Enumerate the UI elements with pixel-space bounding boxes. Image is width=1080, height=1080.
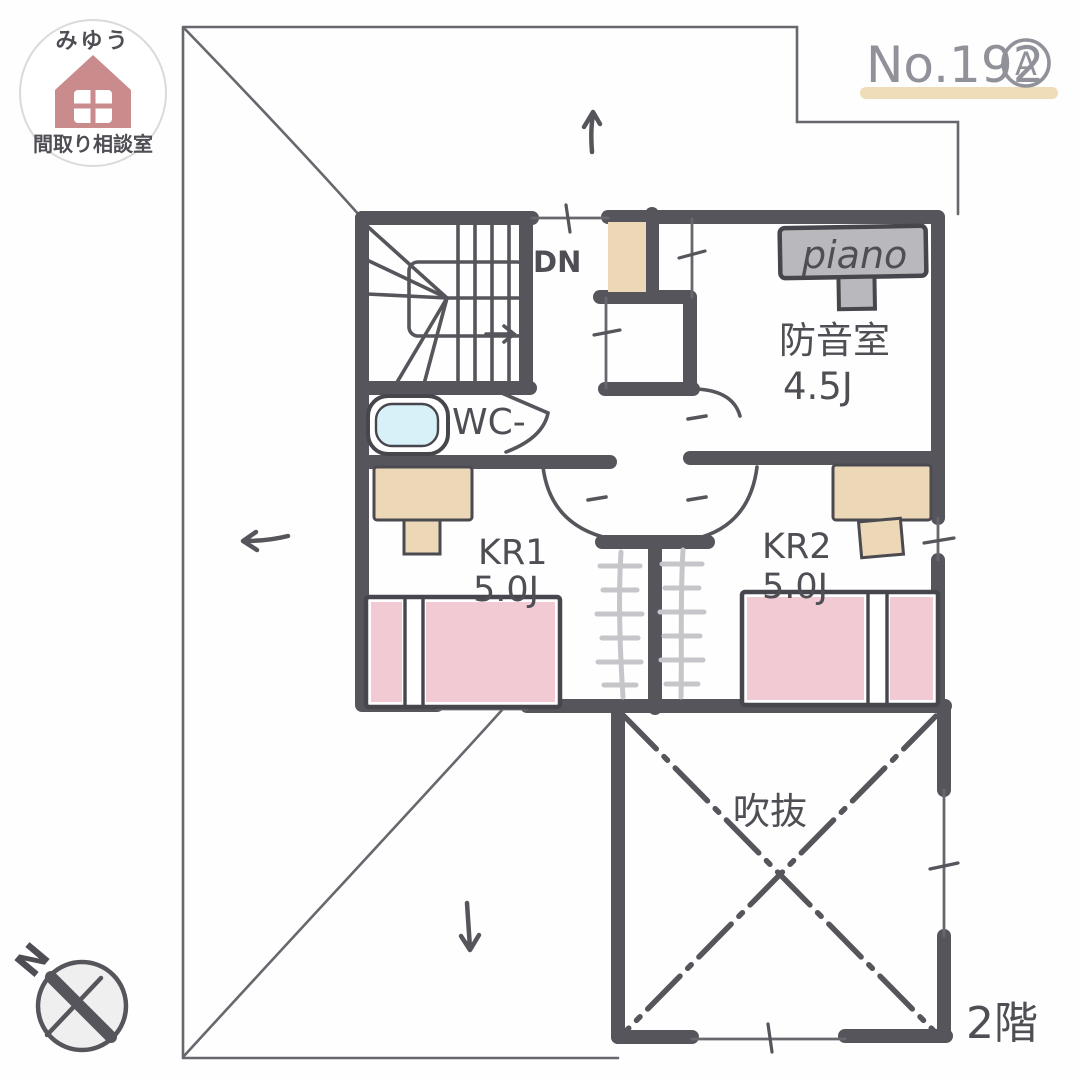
- chair-kr1: [404, 520, 440, 554]
- kr2-size-label: 5.0J: [762, 567, 828, 607]
- arrow-down-icon: [461, 903, 479, 950]
- toilet-bowl: [376, 404, 438, 446]
- piano-stool: [838, 277, 875, 310]
- studio-logo: みゆう 間取り相談室: [20, 20, 166, 166]
- floorplan-canvas: N DN WC- piano 防音室 4.5J KR1 5.0J KR2 5.0…: [0, 0, 1080, 1080]
- void-label: 吹抜: [733, 790, 807, 833]
- desk-kr2: [833, 465, 931, 520]
- wc-label: WC-: [452, 402, 526, 443]
- piano-label: piano: [801, 233, 907, 277]
- bed-kr2-mattress: [747, 597, 864, 700]
- plan-variant-text: A: [1015, 45, 1037, 83]
- logo-studio-name: みゆう: [55, 29, 130, 54]
- stairs-winder-line: [367, 294, 447, 298]
- kr1-size-label: 5.0J: [473, 570, 539, 610]
- arrow-up-icon: [584, 112, 600, 152]
- door-dash: [688, 416, 706, 419]
- tick-top-window: [566, 205, 570, 232]
- arrow-left-icon: [243, 532, 288, 550]
- site-boundary: [183, 27, 958, 1058]
- logo-studio-subtitle: 間取り相談室: [33, 132, 153, 156]
- kr1-name-label: KR1: [478, 533, 548, 573]
- chair-kr2: [859, 518, 904, 558]
- soundproof-size-label: 4.5J: [783, 365, 853, 408]
- desk-kr1: [374, 467, 472, 520]
- door-dash: [588, 497, 606, 500]
- void-cross: [624, 716, 936, 1033]
- door-kr2: [702, 467, 757, 537]
- soundproof-name-label: 防音室: [779, 319, 890, 362]
- roof-diagonal-bottom-left: [184, 710, 502, 1056]
- hanger-rod-right: [681, 550, 683, 697]
- door-soundproof: [697, 389, 740, 416]
- stairs: [367, 222, 526, 384]
- compass: N: [8, 936, 126, 1050]
- bed-kr1-pillow: [371, 602, 402, 702]
- floor-label: 2階: [966, 998, 1038, 1049]
- door-dash: [688, 497, 706, 500]
- bed-kr2-pillow: [890, 597, 933, 700]
- bed-kr1-mattress: [426, 602, 555, 702]
- bed-kr1: [366, 597, 560, 707]
- plan-number: No.192 A: [860, 36, 1058, 99]
- tick-void-bottom: [768, 1024, 772, 1052]
- floorplan-svg: N DN WC- piano 防音室 4.5J KR1 5.0J KR2 5.0…: [0, 0, 1080, 1080]
- stairs-winder-line: [424, 298, 447, 384]
- door-kr1: [543, 467, 603, 537]
- hall-closet-fill: [608, 222, 646, 292]
- roof-diagonal-top-left: [184, 28, 360, 216]
- stairs-dn-label: DN: [533, 245, 581, 279]
- site-outline: [183, 27, 958, 1058]
- stairs-winder-line: [367, 260, 447, 298]
- hanger-rod-left: [620, 552, 623, 697]
- kr2-name-label: KR2: [762, 527, 832, 567]
- bed-kr2: [742, 592, 938, 705]
- stairs-winder-line: [396, 298, 447, 384]
